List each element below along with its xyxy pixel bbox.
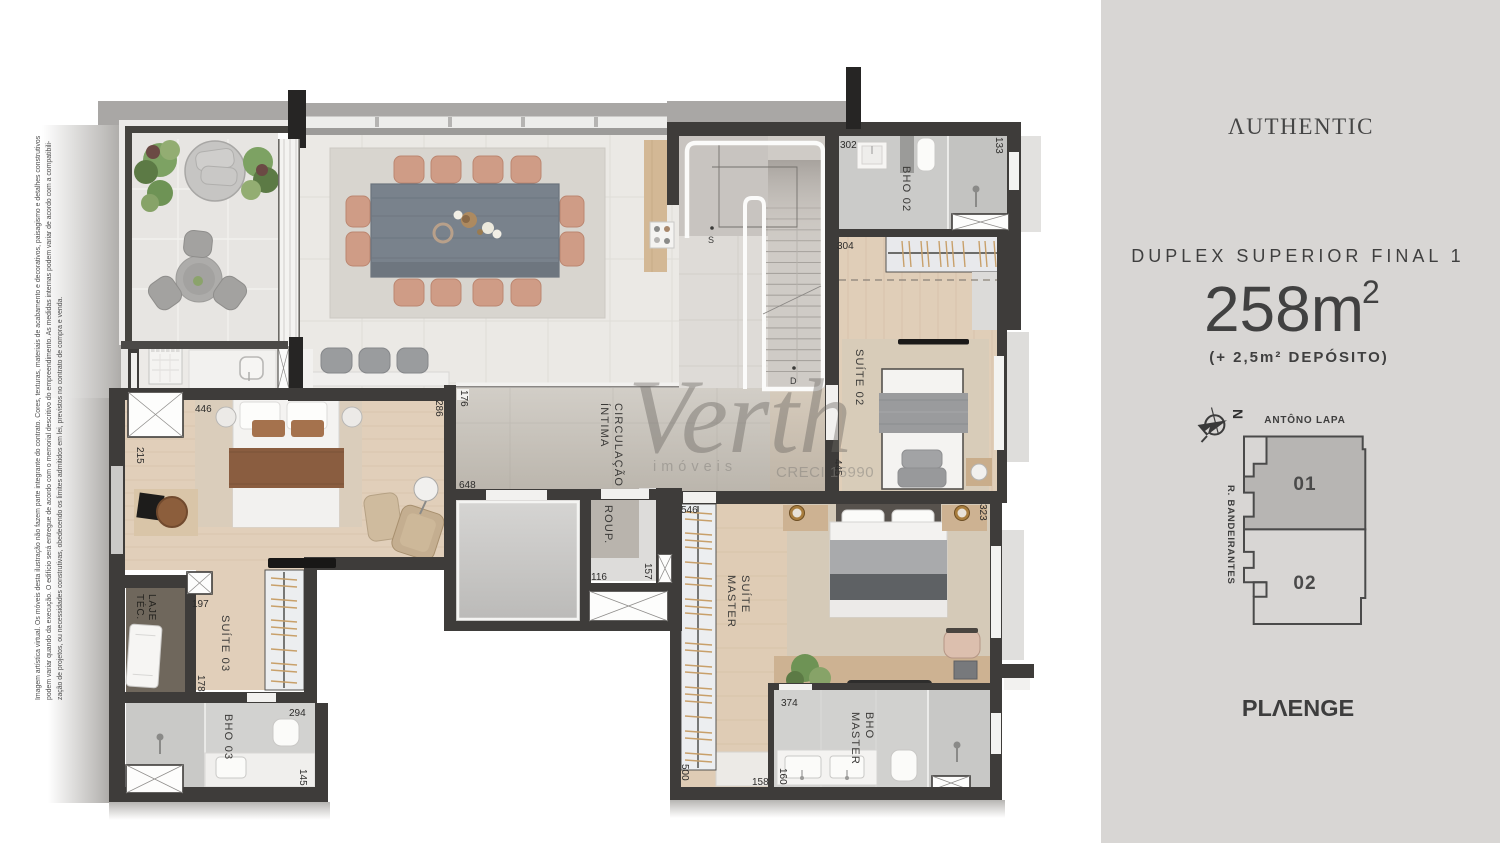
svg-text:446: 446 [195,404,212,415]
svg-text:304: 304 [837,241,854,252]
svg-text:PLΛENGE: PLΛENGE [1242,695,1354,721]
svg-text:116: 116 [591,572,607,583]
svg-text:157: 157 [642,563,653,580]
svg-text:ÍNTIMA: ÍNTIMA [598,403,611,447]
svg-text:MASTER: MASTER [849,712,861,765]
svg-text:SUÍTE 02: SUÍTE 02 [853,349,866,406]
svg-text:258m: 258m [1204,273,1364,345]
svg-text:323: 323 [977,504,988,521]
svg-text:145: 145 [297,769,308,786]
svg-text:197: 197 [192,599,209,610]
svg-text:BHO: BHO [863,712,875,739]
svg-text:N: N [1230,409,1246,419]
svg-text:MASTER: MASTER [725,575,737,628]
svg-text:ΛUTHENTIC: ΛUTHENTIC [1228,114,1374,139]
svg-text:CIRCULAÇÃO: CIRCULAÇÃO [612,403,625,487]
svg-text:R. BANDEIRANTES: R. BANDEIRANTES [1225,485,1236,585]
svg-text:(+ 2,5m² DEPÓSITO): (+ 2,5m² DEPÓSITO) [1209,348,1389,366]
svg-text:2: 2 [1362,274,1380,310]
svg-text:Imagem artística virtual. Os m: Imagem artística virtual. Os móveis dest… [35,135,42,700]
svg-text:ANTÔNO LAPA: ANTÔNO LAPA [1264,413,1345,426]
svg-text:imóveis: imóveis [653,459,737,475]
svg-text:286: 286 [433,400,444,417]
svg-text:546: 546 [681,505,698,516]
svg-text:Verth: Verth [628,358,852,475]
svg-text:ROUP.: ROUP. [602,505,614,544]
svg-text:CRECI 15990: CRECI 15990 [776,464,874,481]
svg-text:TÉC.: TÉC. [134,594,147,620]
svg-text:podem variar quando da execuçã: podem variar quando da execução. O edifí… [46,141,53,700]
svg-text:133: 133 [993,137,1004,154]
svg-text:374: 374 [781,698,798,709]
svg-text:SUÍTE 03: SUÍTE 03 [219,615,232,672]
svg-text:BHO 02: BHO 02 [900,166,912,212]
svg-text:648: 648 [459,480,476,491]
svg-text:294: 294 [289,708,306,719]
svg-text:BHO 03: BHO 03 [222,714,234,760]
svg-text:160: 160 [777,768,788,785]
svg-text:02: 02 [1293,573,1316,594]
svg-text:158: 158 [752,777,769,788]
svg-text:zação de projetos, ou necessid: zação de projetos, ou necessidades const… [57,297,64,700]
svg-text:DUPLEX SUPERIOR FINAL 1: DUPLEX SUPERIOR FINAL 1 [1131,246,1464,266]
svg-text:01: 01 [1293,474,1316,495]
svg-text:176: 176 [458,390,469,407]
svg-text:LAJE: LAJE [146,594,157,621]
svg-text:SUÍTE: SUÍTE [739,575,752,613]
svg-text:302: 302 [840,140,857,151]
svg-text:178: 178 [195,675,206,692]
svg-text:S: S [708,235,714,245]
svg-text:500: 500 [679,764,690,781]
svg-text:215: 215 [134,447,145,464]
